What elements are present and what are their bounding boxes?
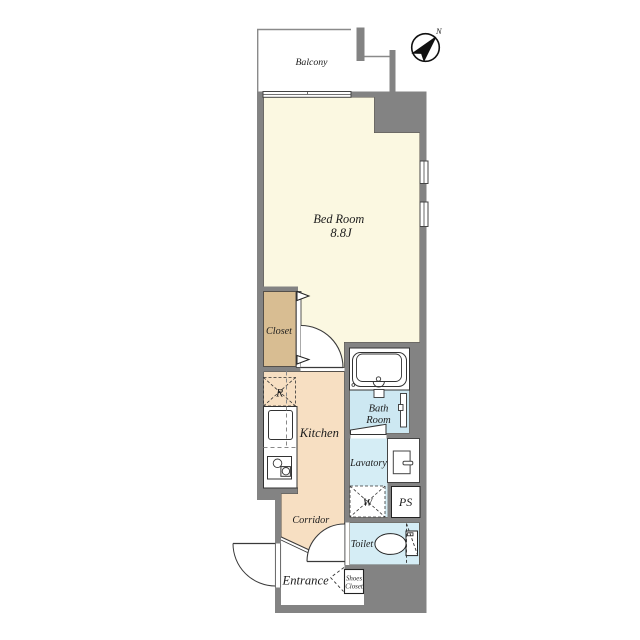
svg-text:Bath: Bath bbox=[369, 404, 389, 415]
svg-text:Lavatory: Lavatory bbox=[349, 458, 387, 469]
svg-text:Room: Room bbox=[365, 415, 391, 426]
svg-text:Toilet: Toilet bbox=[351, 539, 374, 550]
svg-text:PS: PS bbox=[398, 495, 412, 509]
svg-text:R: R bbox=[275, 388, 283, 400]
svg-text:Kitchen: Kitchen bbox=[299, 426, 339, 440]
svg-text:Corridor: Corridor bbox=[292, 515, 329, 526]
svg-text:Shoes: Shoes bbox=[346, 576, 362, 583]
svg-text:8.8J: 8.8J bbox=[330, 226, 353, 240]
svg-text:Balcony: Balcony bbox=[295, 57, 328, 68]
svg-text:Closet: Closet bbox=[266, 326, 293, 337]
svg-text:Bed Room: Bed Room bbox=[313, 212, 364, 226]
svg-text:W: W bbox=[363, 497, 374, 509]
svg-text:Closet: Closet bbox=[345, 584, 364, 591]
svg-text:Entrance: Entrance bbox=[282, 574, 330, 588]
